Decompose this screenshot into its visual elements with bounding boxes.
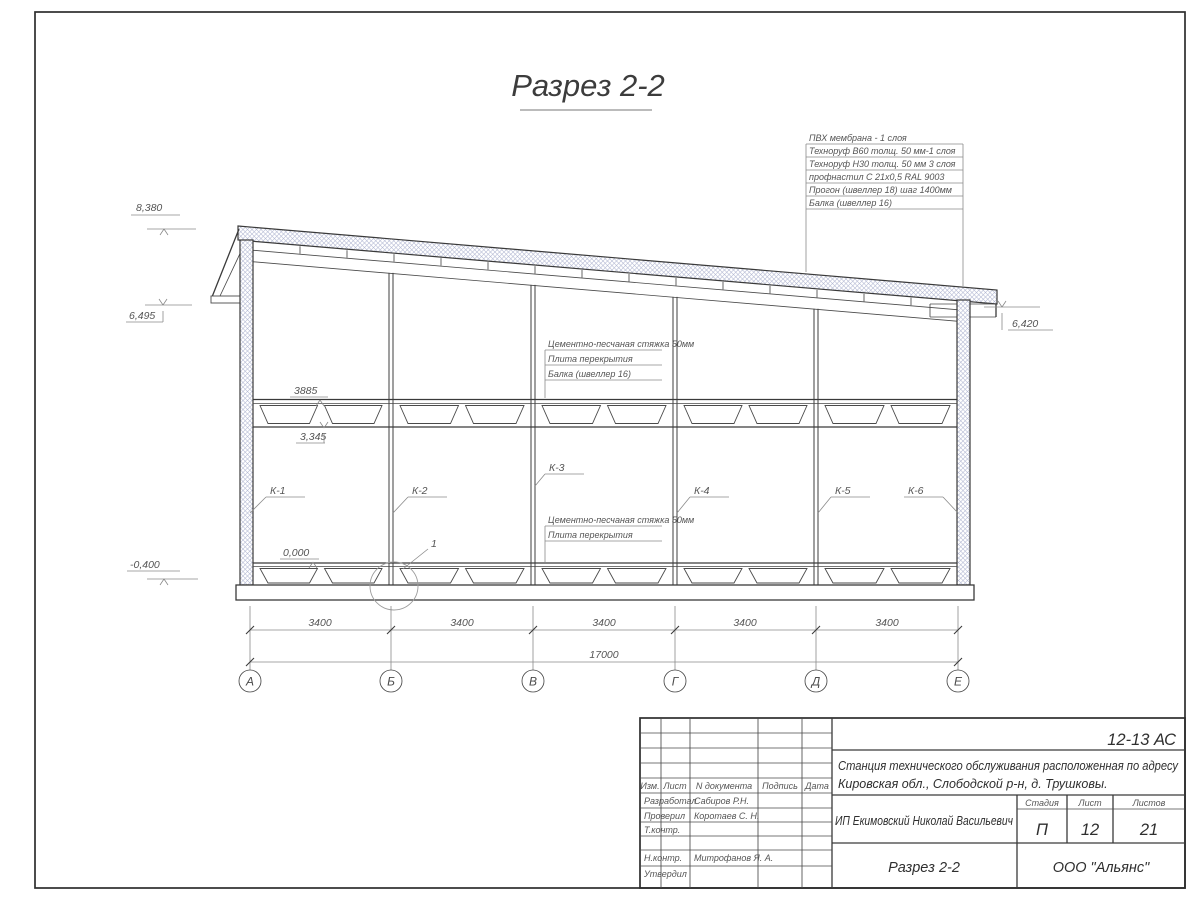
elevation-arrow <box>160 579 164 585</box>
elevation-value: 0,000 <box>283 547 309 559</box>
axis-label: Д <box>810 675 821 689</box>
sheet-title: Разрез 2-2 <box>888 860 960 876</box>
floor-annotation-label: Плита перекрытия <box>548 354 633 364</box>
roof-layer-label: Техноруф Н30 толщ. 50 мм 3 слоя <box>809 159 956 169</box>
bay-dimension-label: 3400 <box>875 617 899 629</box>
elevation-value: 6,420 <box>1012 318 1038 330</box>
floor-slab-panel <box>400 406 459 424</box>
roof-layer-label: Балка (швеллер 16) <box>809 198 892 208</box>
elevation-value: 3885 <box>294 385 318 397</box>
floor-slab-panel <box>325 406 383 424</box>
client-name: ИП Екимовский Николай Васильевич <box>835 814 1013 828</box>
sheet-value: 12 <box>1081 821 1099 839</box>
floor-annotation-label: Плита перекрытия <box>548 530 633 540</box>
axis-label: А <box>245 675 254 689</box>
elevation-arrow <box>159 299 163 305</box>
floor-slab-panel <box>684 406 742 424</box>
axis-label: Е <box>954 675 963 689</box>
sheet-label: Лист <box>1077 798 1102 808</box>
ground-slab-panel <box>825 569 884 584</box>
sheets-value: 21 <box>1139 821 1158 839</box>
left-wall <box>240 240 253 585</box>
total-dimension-label: 17000 <box>589 649 618 661</box>
section-drawing <box>211 226 997 610</box>
elevation-arrow <box>164 579 168 585</box>
role-label: Т.контр. <box>644 825 680 835</box>
revision-header-cell: Лист <box>662 781 687 791</box>
annotations-group: ПВХ мембрана - 1 слояТехноруф В60 толщ. … <box>126 133 1053 585</box>
column-mark-leader <box>535 474 545 486</box>
column-mark-label: К-4 <box>694 485 710 497</box>
ground-slab-panel <box>542 569 601 584</box>
column-mark-leader <box>943 497 958 513</box>
revision-header-cell: Изм. <box>640 781 659 791</box>
role-label: Н.контр. <box>644 853 682 863</box>
ground-slab-panel <box>325 569 383 584</box>
stage-value: П <box>1036 821 1048 839</box>
right-wall <box>957 300 970 585</box>
floor-slab-panel <box>608 406 667 424</box>
ground-slab-panel <box>749 569 807 584</box>
column-mark-leader <box>677 497 690 513</box>
bay-dimension-label: 3400 <box>450 617 474 629</box>
ground-slab-panel <box>891 569 950 584</box>
floor-slab-panel <box>749 406 807 424</box>
ground-slab-panel <box>260 569 318 584</box>
role-name: Митрофанов Я. А. <box>694 853 773 863</box>
drawing-title-group: Разрез 2-2 <box>511 68 665 110</box>
column-mark-label: К-5 <box>835 485 851 497</box>
column-mark-leader <box>393 497 408 513</box>
roof-layer-label: Техноруф В60 толщ. 50 мм-1 слоя <box>809 146 956 156</box>
floor-slab-panel <box>466 406 525 424</box>
gable-overhang-edge <box>212 229 239 297</box>
elevation-value: 8,380 <box>136 202 162 214</box>
role-label: Проверил <box>644 811 685 821</box>
role-label: Утвердил <box>643 869 687 879</box>
stage-label: Стадия <box>1025 798 1059 808</box>
elevation-arrow <box>163 299 167 305</box>
detail-leader <box>403 549 428 569</box>
floor-slab-panel <box>260 406 318 424</box>
elevation-value: 6,495 <box>129 310 155 322</box>
column-mark-label: К-6 <box>908 485 924 497</box>
doc-code: 12-13 АС <box>1107 731 1176 749</box>
floor-annotation-label: Балка (швеллер 16) <box>548 369 631 379</box>
foundation-slab <box>236 585 974 600</box>
elevation-value: 3,345 <box>300 431 326 443</box>
roof-layer-label: профнастил С 21х0,5 RAL 9003 <box>809 172 944 182</box>
floor-slab-panel <box>542 406 601 424</box>
revision-header-cell: Подпись <box>762 781 798 791</box>
ground-slab-panel <box>608 569 667 584</box>
roof-layer-label: Прогон (швеллер 18) шаг 1400мм <box>809 185 952 195</box>
axis-label: Б <box>387 675 395 689</box>
role-name: Коротаев С. Н. <box>694 811 759 821</box>
elevation-arrow <box>1002 301 1006 307</box>
role-label: Разработал <box>644 796 696 806</box>
ground-slab-panel <box>466 569 525 584</box>
floor-slab-panel <box>891 406 950 424</box>
floor-annotation-label: Цементно-песчаная стяжка 50мм <box>548 339 694 349</box>
column-mark-label: К-2 <box>412 485 428 497</box>
elevation-value: -0,400 <box>130 559 160 571</box>
dimensions-group: 3400340034003400340017000АБВГДЕ <box>239 606 969 692</box>
ground-slab-panel <box>684 569 742 584</box>
revision-header-cell: Дата <box>804 781 829 791</box>
bay-dimension-label: 3400 <box>308 617 332 629</box>
floor-annotation-label: Цементно-песчаная стяжка 50мм <box>548 515 694 525</box>
bay-dimension-label: 3400 <box>592 617 616 629</box>
revision-header-cell: N документа <box>696 781 752 791</box>
floor-slab-panel <box>825 406 884 424</box>
elevation-arrow <box>320 400 324 406</box>
page-title: Разрез 2-2 <box>511 68 665 103</box>
elevation-arrow <box>998 301 1002 307</box>
sheets-label: Листов <box>1132 798 1166 808</box>
sheet-frame-group <box>35 12 1185 888</box>
roof-layer-label: ПВХ мембрана - 1 слоя <box>809 133 907 143</box>
role-name: Сабиров Р.Н. <box>694 796 749 806</box>
elevation-arrow <box>160 229 164 235</box>
axis-label: В <box>529 675 537 689</box>
column-mark-label: К-1 <box>270 485 286 497</box>
detail-number: 1 <box>431 538 437 550</box>
project-name-line1: Станция технического обслуживания распол… <box>838 759 1179 773</box>
drawing-sheet: Разрез 2-2 ПВХ мембрана - 1 слояТехноруф… <box>0 0 1200 900</box>
title-block: 12-13 АССтанция технического обслуживани… <box>640 718 1185 888</box>
column-mark-leader <box>818 497 831 513</box>
organization-name: ООО "Альянс" <box>1053 860 1150 876</box>
axis-label: Г <box>672 675 680 689</box>
bay-dimension-label: 3400 <box>733 617 757 629</box>
elevation-arrow <box>164 229 168 235</box>
sheet-frame <box>35 12 1185 888</box>
project-name-line2: Кировская обл., Слободской р-н, д. Трушк… <box>838 777 1108 791</box>
column-mark-label: К-3 <box>549 462 565 474</box>
ground-slab-panel <box>400 569 459 584</box>
